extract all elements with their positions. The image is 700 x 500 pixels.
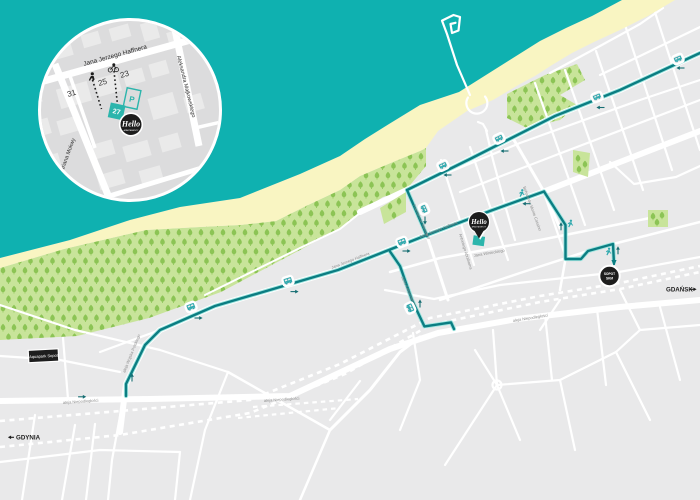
svg-text:APARTAMENTY: APARTAMENTY [472, 226, 487, 229]
svg-text:Hello: Hello [121, 120, 140, 129]
svg-text:SOPOT: SOPOT [604, 272, 615, 276]
svg-text:GDYNIA: GDYNIA [16, 435, 41, 442]
svg-text:APARTAMENTY: APARTAMENTY [124, 129, 139, 132]
svg-text:GDAŃSK: GDAŃSK [666, 286, 693, 294]
svg-text:SKM: SKM [606, 277, 613, 281]
svg-text:Hello: Hello [470, 219, 487, 226]
